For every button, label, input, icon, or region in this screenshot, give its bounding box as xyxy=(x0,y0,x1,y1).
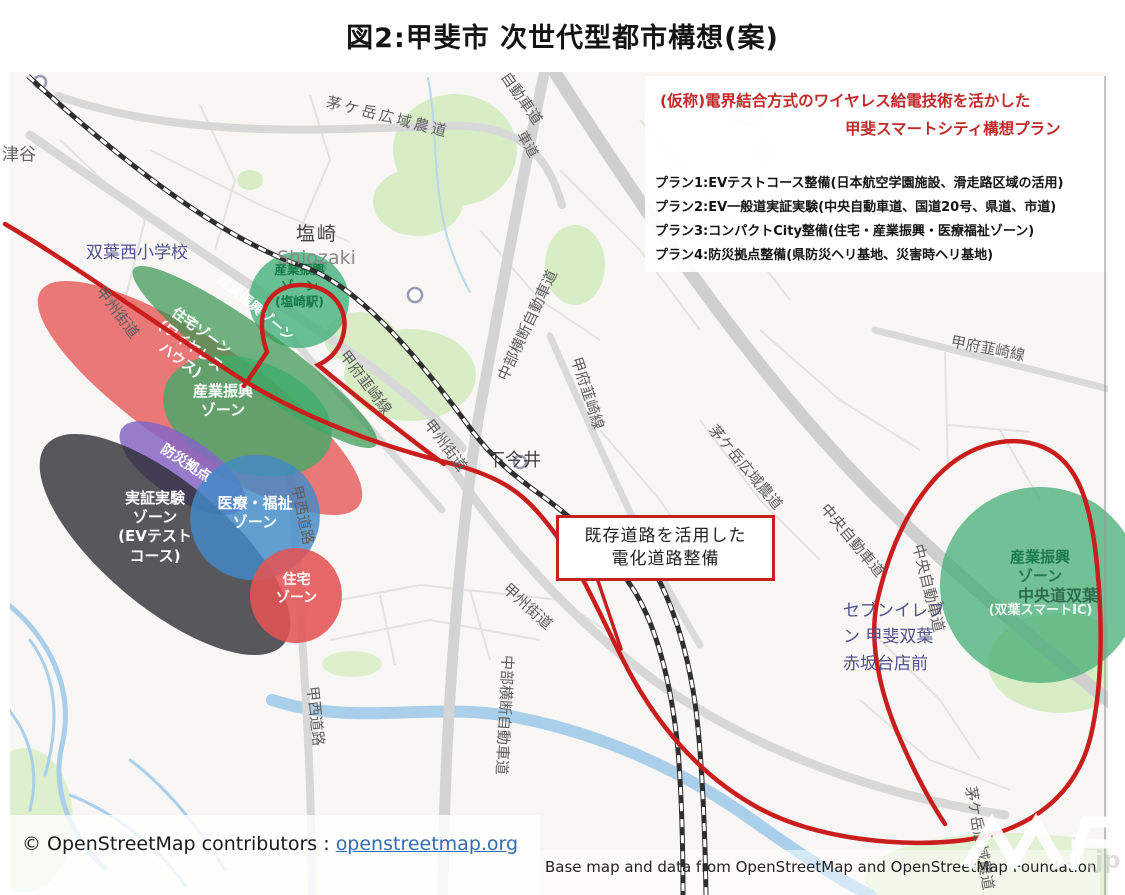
legend-heading-line2: 甲斐スマートシティ構想プラン xyxy=(845,117,1061,139)
figure-page: 図2:甲斐市 次世代型都市構想(案) xyxy=(0,0,1125,895)
label-tsuya: 津谷 xyxy=(2,140,36,165)
osm-attribution-text: © OpenStreetMap contributors : xyxy=(22,833,330,855)
label-futaba-nishi-elementary: 双葉西小学校 xyxy=(86,238,188,263)
label-seven-eleven: セブンイレブ ン 甲斐双葉 赤坂台店前 xyxy=(843,598,945,677)
zone-label-futaba: 産業振興 ゾーン xyxy=(985,548,1095,586)
openstreetmap-link[interactable]: openstreetmap.org xyxy=(336,833,518,855)
osm-attribution: © OpenStreetMap contributors : openstree… xyxy=(22,833,518,855)
label-shiozaki-romaji: Shiozaki xyxy=(277,247,356,269)
zone-label-jutaku-south: 住宅 ゾーン xyxy=(259,572,334,608)
label-shimo-imai: 下今井 xyxy=(487,446,541,472)
electrified-road-callout: 既存道路を活用した 電化道路整備 xyxy=(556,515,775,581)
legend-plan-1: プラン1:EVテストコース整備(日本航空学園施設、滑走路区域の活用) xyxy=(655,172,1063,191)
zone-label-sangyo-blob: 産業振興 ゾーン xyxy=(168,382,278,420)
watermark-jp-suffix: .jp xyxy=(1086,846,1121,874)
zone-label-jisshou: 実証実験 ゾーン (EVテスト コース) xyxy=(105,489,205,566)
legend-plan-3: プラン3:コンパクトCity整備(住宅・産業振興・医療福祉ゾーン) xyxy=(655,220,1034,239)
legend-plan-2: プラン2:EV一般道実証実験(中央自動車道、国道20号、県道、市道) xyxy=(655,196,1056,215)
legend-heading-line1: (仮称)電界結合方式のワイヤレス給電技術を活かした xyxy=(660,89,1030,111)
zone-label-shiozaki: 産業振興 ゾーン (塩崎駅) xyxy=(252,262,347,310)
legend-panel: (仮称)電界結合方式のワイヤレス給電技術を活かした 甲斐スマートシティ構想プラン… xyxy=(645,76,1107,272)
map-frame-edge xyxy=(1104,76,1106,895)
label-chuodo-futaba: 中央道双葉 xyxy=(1018,582,1098,606)
legend-plan-4: プラン4:防災拠点整備(県防災ヘリ基地、災害時ヘリ基地) xyxy=(655,244,993,263)
figure-title: 図2:甲斐市 次世代型都市構想(案) xyxy=(0,16,1125,55)
label-shiozaki-kanji: 塩崎 xyxy=(296,219,338,246)
